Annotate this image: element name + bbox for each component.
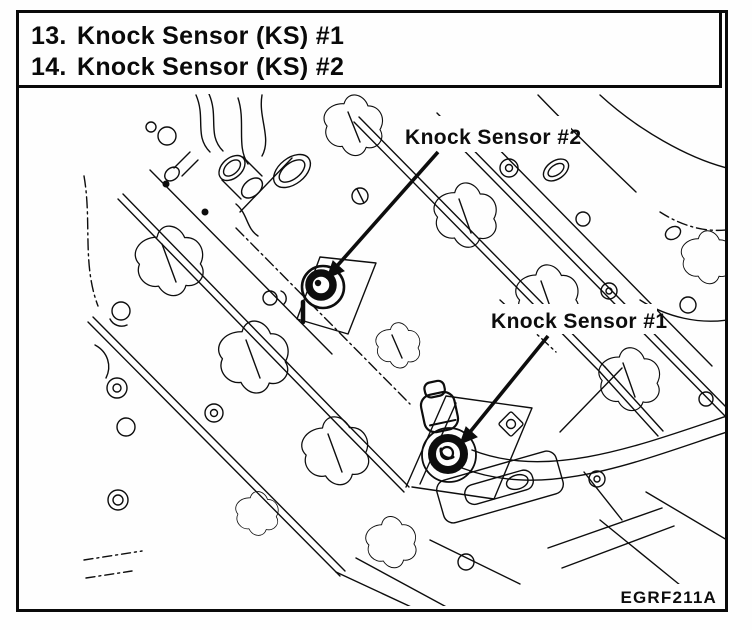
callout-label-knock-sensor-2: Knock Sensor #2 <box>405 126 581 149</box>
manual-page: 13. Knock Sensor (KS) #1 14. Knock Senso… <box>0 0 752 630</box>
engine-fitting-cluster <box>162 94 266 236</box>
engine-bolt-holes <box>107 122 713 570</box>
callout-arrow-sensor-2 <box>327 152 438 278</box>
engine-line-art <box>84 85 744 612</box>
engine-top-contours <box>238 95 727 230</box>
engine-harness-pipe <box>462 300 727 585</box>
callout-label-knock-sensor-1: Knock Sensor #1 <box>491 310 667 333</box>
knock-sensor-2-marker <box>302 266 344 322</box>
engine-rails <box>88 113 727 576</box>
label-underlays <box>399 116 722 606</box>
figure-code: EGRF211A <box>620 588 717 607</box>
engine-diagram: Knock Sensor #2 Knock Sensor #1 EGRF211A <box>0 0 752 630</box>
callout-arrow-sensor-1 <box>460 336 548 444</box>
